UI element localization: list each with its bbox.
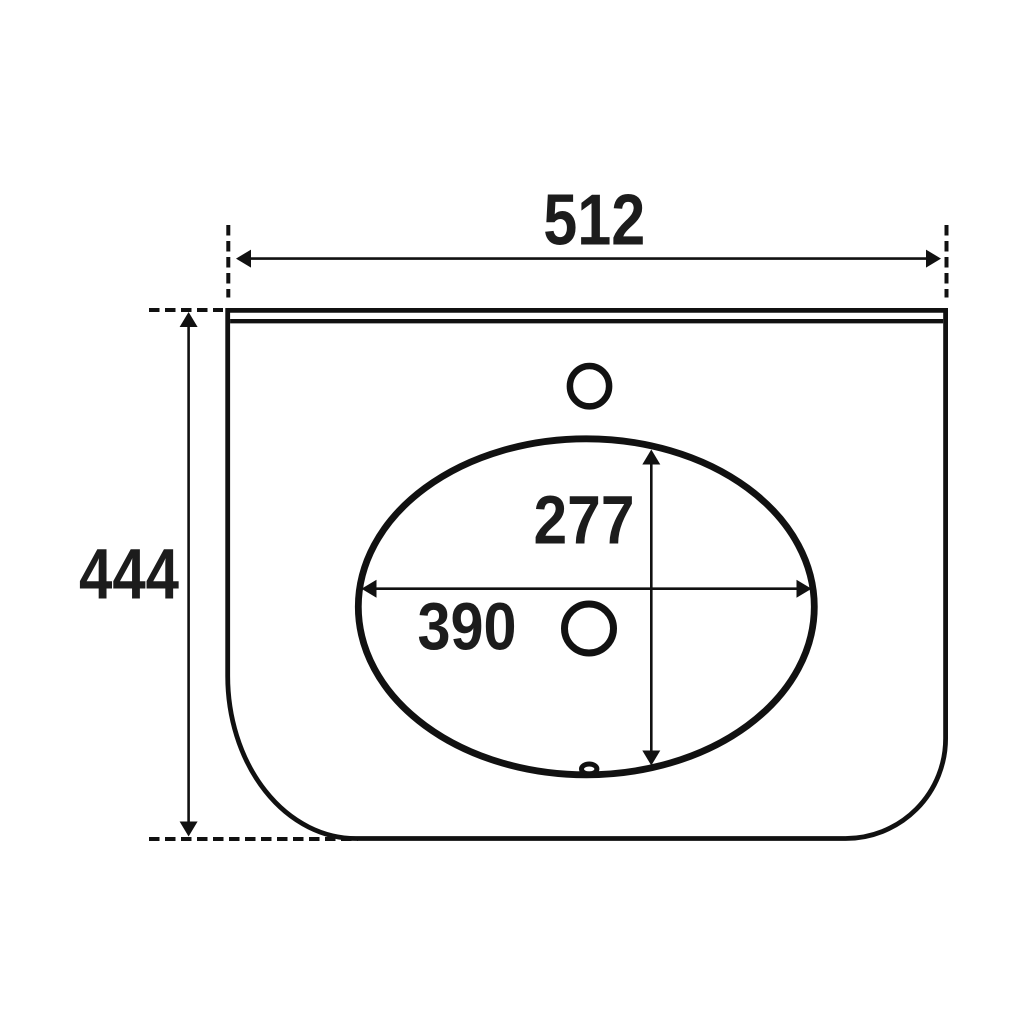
svg-text:277: 277 (534, 482, 635, 559)
svg-text:512: 512 (543, 180, 645, 261)
svg-text:390: 390 (418, 590, 517, 665)
svg-text:444: 444 (79, 535, 179, 614)
